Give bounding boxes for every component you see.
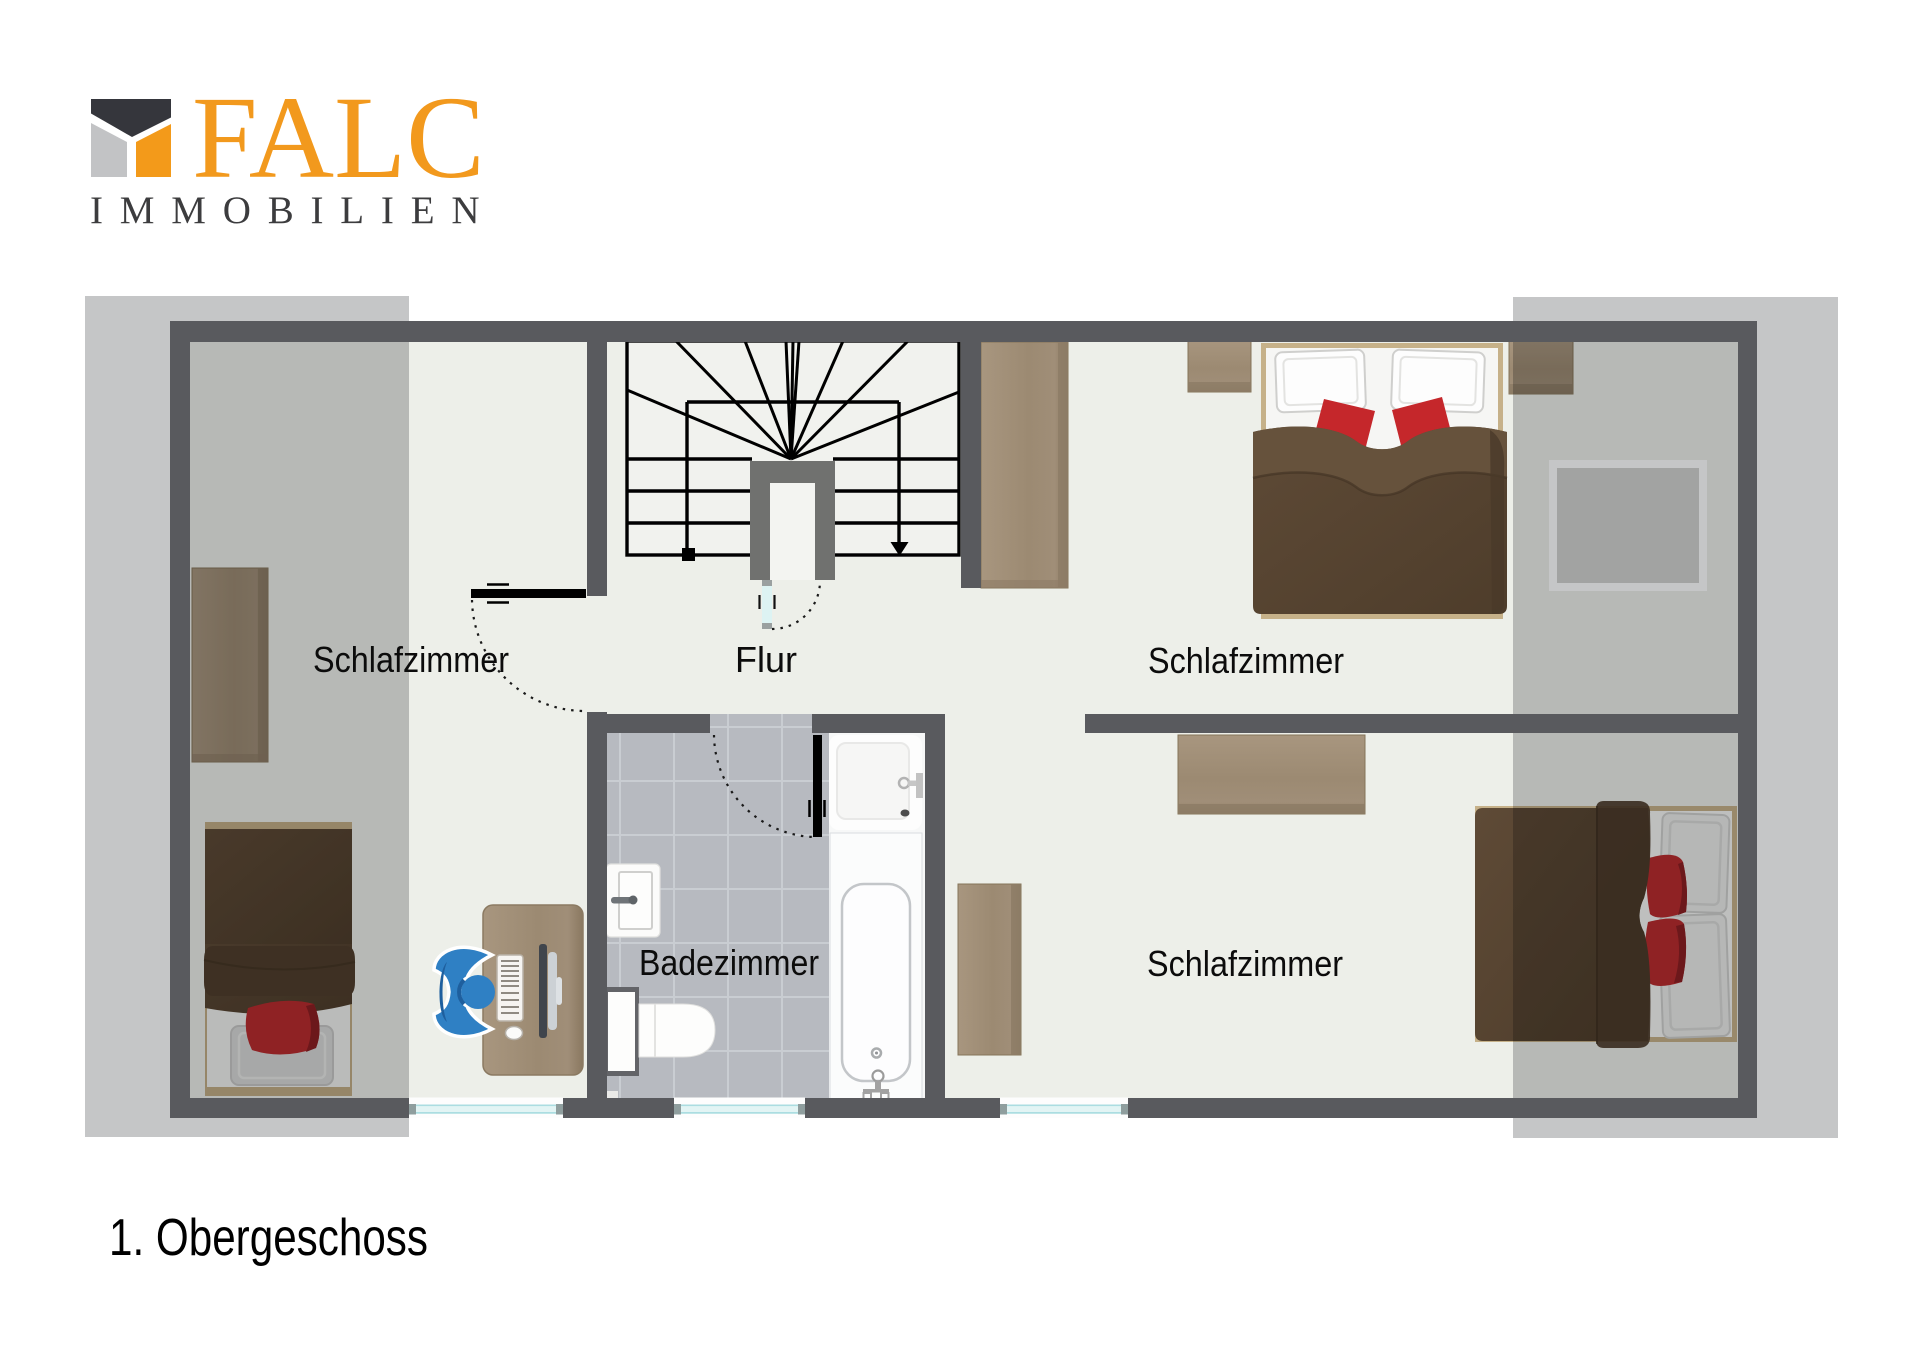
- svg-text:Schlafzimmer: Schlafzimmer: [1147, 943, 1343, 984]
- svg-text:Schlafzimmer: Schlafzimmer: [313, 639, 509, 680]
- svg-text:Schlafzimmer: Schlafzimmer: [1148, 640, 1344, 681]
- svg-text:IMMOBILIEN: IMMOBILIEN: [90, 189, 496, 232]
- svg-text:Flur: Flur: [735, 639, 797, 680]
- svg-text:1. Obergeschoss: 1. Obergeschoss: [109, 1209, 428, 1267]
- svg-text:FALC: FALC: [192, 72, 485, 203]
- svg-text:Badezimmer: Badezimmer: [639, 942, 819, 983]
